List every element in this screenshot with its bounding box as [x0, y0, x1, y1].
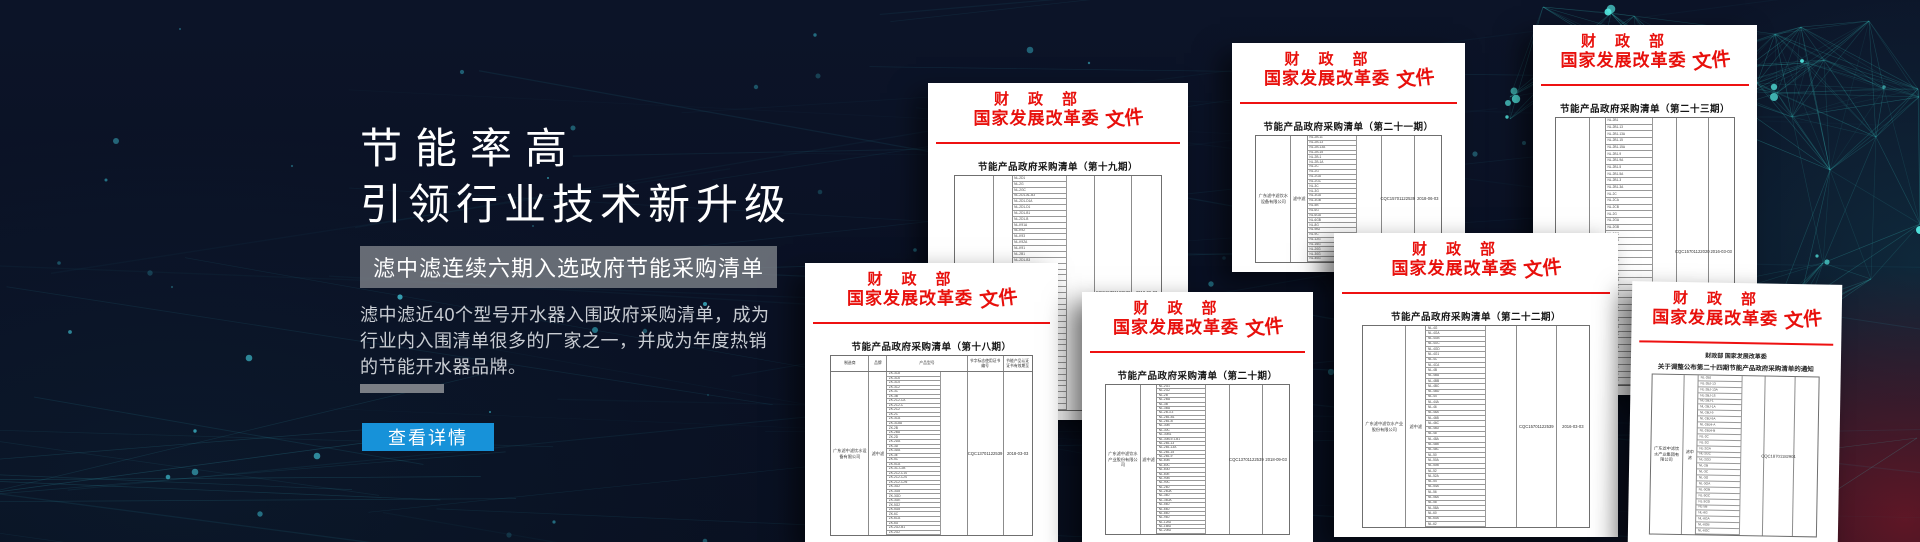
- notice-title-line: 关于调整公布第二十四期节能产品政府采购清单的通知: [1631, 360, 1841, 374]
- table-header-cell: 节能产品认证证书有效期至: [1004, 356, 1032, 371]
- manufacturer-cell: 广东滤中滤饮水设备有限公司: [1256, 136, 1291, 262]
- brand-cell: 滤中滤: [1141, 385, 1157, 534]
- header-ministry-of-finance: 财 政 部: [847, 272, 973, 289]
- valid-date-cell: [1793, 377, 1819, 536]
- document-header-lines: 财 政 部国家发展改革委: [1391, 242, 1517, 279]
- document-title: 节能产品政府采购清单（第十八期）: [805, 339, 1058, 353]
- document-header-lines: 财 政 部国家发展改革委: [1652, 291, 1779, 330]
- document-list-18: 财 政 部国家发展改革委文件节能产品政府采购清单（第十八期）制造商品牌产品型号节…: [805, 263, 1058, 542]
- hero-description-line: 滤中滤近40个型号开水器入围政府采购清单，成为: [360, 302, 820, 328]
- table-body: 广东滤中滤饮水设备有限公司滤中滤ZK-3C8ZK-3C6ZK-3C5ZK-3C2…: [831, 372, 1031, 535]
- document-red-divider: [1541, 84, 1749, 86]
- model-row: NL-2B1-13: [1606, 125, 1653, 132]
- document-red-divider: [813, 322, 1050, 324]
- document-red-divider: [1639, 340, 1833, 345]
- model-row: NL-2B1-3A: [1606, 185, 1653, 192]
- document-header-lines: 财 政 部国家发展改革委: [1264, 52, 1390, 89]
- header-ministry-of-finance: 财 政 部: [1560, 34, 1686, 51]
- model-row: NL-6GC: [1696, 529, 1740, 536]
- certificate-cell: CQC13701122539: [1230, 385, 1263, 534]
- table-header-cell: 制造商: [831, 356, 869, 371]
- document-red-divider: [1090, 351, 1305, 353]
- table-header-cell: 产品型号: [887, 356, 967, 371]
- hero-text-block: 节能率高 引领行业技术新升级 滤中滤连续六期入选政府节能采购清单 滤中滤近40个…: [360, 128, 820, 451]
- document-header: 财 政 部国家发展改革委文件: [805, 263, 1058, 309]
- document-header: 财 政 部国家发展改革委文件: [1232, 43, 1465, 89]
- model-row: NL-2B1-15A: [1606, 145, 1653, 152]
- table-header-row: 制造商品牌产品型号节字标志使用证书编号节能产品认证证书有效期至: [831, 356, 1031, 372]
- valid-date-cell: 2018-09-03: [1263, 385, 1289, 534]
- heading-line2: 引领行业技术新升级: [360, 184, 820, 226]
- document-title: 节能产品政府采购清单（第十九期）: [928, 159, 1188, 173]
- document-table: 广东滤中滤饮水产业股份有限公司滤中滤NL-2G1NL-2GZNL-2BNL-2B…: [1105, 384, 1290, 535]
- model-list: NL-4GNL-4GANL-4GBNL-4GCNL-4GDNL-4G1NL-4C…: [1426, 326, 1516, 527]
- document-header-lines: 财 政 部国家发展改革委: [973, 92, 1099, 129]
- header-wenjian-label: 文件: [978, 282, 1019, 313]
- model-row: NL-2B1-3: [1606, 178, 1653, 185]
- header-ndrc: 国家发展改革委: [1391, 259, 1517, 279]
- document-table: 广东滤中滤饮水产业股份有限公司滤中滤NL-4GNL-4GANL-4GBNL-4G…: [1362, 325, 1589, 528]
- document-notice-24: 财 政 部国家发展改革委文件财政部 国家发展改革委关于调整公布第二十四期节能产品…: [1628, 281, 1843, 542]
- manufacturer-cell: 广东滤中滤饮水产业股份有限公司: [1363, 326, 1406, 527]
- hero-description: 滤中滤近40个型号开水器入围政府采购清单，成为 行业内入围清单很多的厂家之一，并…: [360, 302, 820, 380]
- header-ministry-of-finance: 财 政 部: [1113, 301, 1239, 318]
- model-row: NL-2C: [1606, 191, 1653, 198]
- document-table: 广东滤中滤饮水产业集团有限公司滤中滤NL-2BJNL-2BJ-13NL-2BJ-…: [1649, 374, 1820, 538]
- manufacturer-cell: 广东滤中滤饮水产业股份有限公司: [1106, 385, 1141, 534]
- header-ministry-of-finance: 财 政 部: [1391, 242, 1517, 259]
- document-header: 财 政 部国家发展改革委文件: [928, 83, 1188, 129]
- brand-cell: 滤中滤: [1406, 326, 1426, 527]
- model-list: ZK-3C8ZK-3C6ZK-3C5ZK-3C2ZK-3CZK-3BZK-2C2…: [887, 372, 967, 535]
- document-title: 节能产品政府采购清单（第二十一期）: [1232, 119, 1465, 133]
- model-list: NL-2G1NL-2GZNL-2BNL-2BANL-3BNL-3BANL-2B-…: [1157, 385, 1230, 534]
- header-wenjian-label: 文件: [1395, 62, 1436, 93]
- model-row: NL-2B1-9: [1606, 151, 1653, 158]
- model-row: NL-2CA: [1606, 198, 1653, 205]
- model-row: NL-2CB: [1606, 205, 1653, 212]
- document-header: 财 政 部国家发展改革委文件: [1632, 281, 1843, 330]
- model-row: NL-2B1-5A: [1606, 171, 1653, 178]
- document-red-divider: [936, 142, 1180, 144]
- header-ndrc: 国家发展改革委: [973, 109, 1099, 129]
- header-ministry-of-finance: 财 政 部: [973, 92, 1099, 109]
- header-ndrc: 国家发展改革委: [1652, 308, 1778, 330]
- document-header: 财 政 部国家发展改革委文件: [1533, 25, 1757, 71]
- header-wenjian-label: 文件: [1522, 252, 1563, 283]
- document-title: 节能产品政府采购清单（第二十期）: [1082, 368, 1313, 382]
- model-row: NL-2B1-9A: [1606, 158, 1653, 165]
- banner: 节能率高 引领行业技术新升级 滤中滤连续六期入选政府节能采购清单 滤中滤近40个…: [0, 0, 1920, 542]
- model-row: NL-62: [1426, 522, 1486, 527]
- valid-date-cell: 2018-03-03: [1004, 372, 1032, 535]
- document-header-lines: 财 政 部国家发展改革委: [847, 272, 973, 309]
- header-ministry-of-finance: 财 政 部: [1264, 52, 1390, 69]
- header-ndrc: 国家发展改革委: [1264, 69, 1390, 89]
- document-header: 财 政 部国家发展改革委文件: [1334, 233, 1618, 279]
- certificate-cell: CQC18701182901: [1763, 377, 1796, 536]
- document-title: 节能产品政府采购清单（第二十三期）: [1533, 101, 1757, 115]
- table-header-cell: 品牌: [869, 356, 887, 371]
- document-table: 制造商品牌产品型号节字标志使用证书编号节能产品认证证书有效期至广东滤中滤饮水设备…: [830, 355, 1032, 536]
- document-header: 财 政 部国家发展改革委文件: [1082, 292, 1313, 338]
- heading-line1: 节能率高: [360, 128, 820, 170]
- model-row: ZK-2G2: [887, 531, 940, 536]
- certificate-cell: CQC15701122539: [1517, 326, 1558, 527]
- manufacturer-cell: 广东滤中滤饮水产业集团有限公司: [1650, 375, 1684, 535]
- model-list: NL-2BJNL-2BJ-13NL-2BJ-13ANL-2BJ-15NL-2BJ…: [1696, 375, 1765, 535]
- table-body: 广东滤中滤饮水产业股份有限公司滤中滤NL-2G1NL-2GZNL-2BNL-2B…: [1106, 385, 1289, 534]
- document-red-divider: [1342, 292, 1610, 294]
- document-header-lines: 财 政 部国家发展改革委: [1560, 34, 1686, 71]
- model-row: NL-2G: [1606, 211, 1653, 218]
- table-body: 广东滤中滤饮水产业股份有限公司滤中滤NL-4GNL-4GANL-4GBNL-4G…: [1363, 326, 1588, 527]
- divider-bar: [360, 384, 444, 393]
- header-wenjian-label: 文件: [1783, 303, 1824, 334]
- certificate-cell: CQC13701122539: [968, 372, 1004, 535]
- hero-description-line: 行业内入围清单很多的厂家之一，并成为年度热销: [360, 328, 820, 354]
- model-row: NL-20BJ: [1157, 529, 1205, 533]
- brand-cell: 滤中滤: [1291, 136, 1308, 262]
- header-ndrc: 国家发展改革委: [1560, 51, 1686, 71]
- table-header-cell: 节字标志使用证书编号: [968, 356, 1004, 371]
- model-row: NL-2GB: [1606, 225, 1653, 232]
- header-wenjian-label: 文件: [1104, 102, 1145, 133]
- document-list-22: 财 政 部国家发展改革委文件节能产品政府采购清单（第二十二期）广东滤中滤饮水产业…: [1334, 233, 1618, 537]
- subtitle-badge: 滤中滤连续六期入选政府节能采购清单: [360, 246, 777, 288]
- document-list-20: 财 政 部国家发展改革委文件节能产品政府采购清单（第二十期）广东滤中滤饮水产业股…: [1082, 292, 1313, 542]
- manufacturer-cell: 广东滤中滤饮水设备有限公司: [831, 372, 869, 535]
- brand-cell: 滤中滤: [869, 372, 887, 535]
- table-body: 广东滤中滤饮水产业集团有限公司滤中滤NL-2BJNL-2BJ-13NL-2BJ-…: [1650, 375, 1819, 537]
- model-row: NL-2B1-5: [1606, 165, 1653, 172]
- document-header-lines: 财 政 部国家发展改革委: [1113, 301, 1239, 338]
- header-ndrc: 国家发展改革委: [847, 289, 973, 309]
- document-red-divider: [1240, 102, 1457, 104]
- model-row: NL-2B1: [1606, 118, 1653, 125]
- model-row: NL-2B1-15: [1606, 138, 1653, 145]
- view-details-button[interactable]: 查看详情: [362, 423, 494, 451]
- model-row: NL-2GA: [1606, 218, 1653, 225]
- header-wenjian-label: 文件: [1691, 44, 1732, 75]
- document-title: 节能产品政府采购清单（第二十二期）: [1334, 309, 1618, 323]
- valid-date-cell: 2016-03-03: [1557, 326, 1589, 527]
- hero-description-line: 的节能开水器品牌。: [360, 354, 820, 380]
- header-ndrc: 国家发展改革委: [1113, 318, 1239, 338]
- header-wenjian-label: 文件: [1244, 311, 1285, 342]
- model-row: NL-2B1-13A: [1606, 131, 1653, 138]
